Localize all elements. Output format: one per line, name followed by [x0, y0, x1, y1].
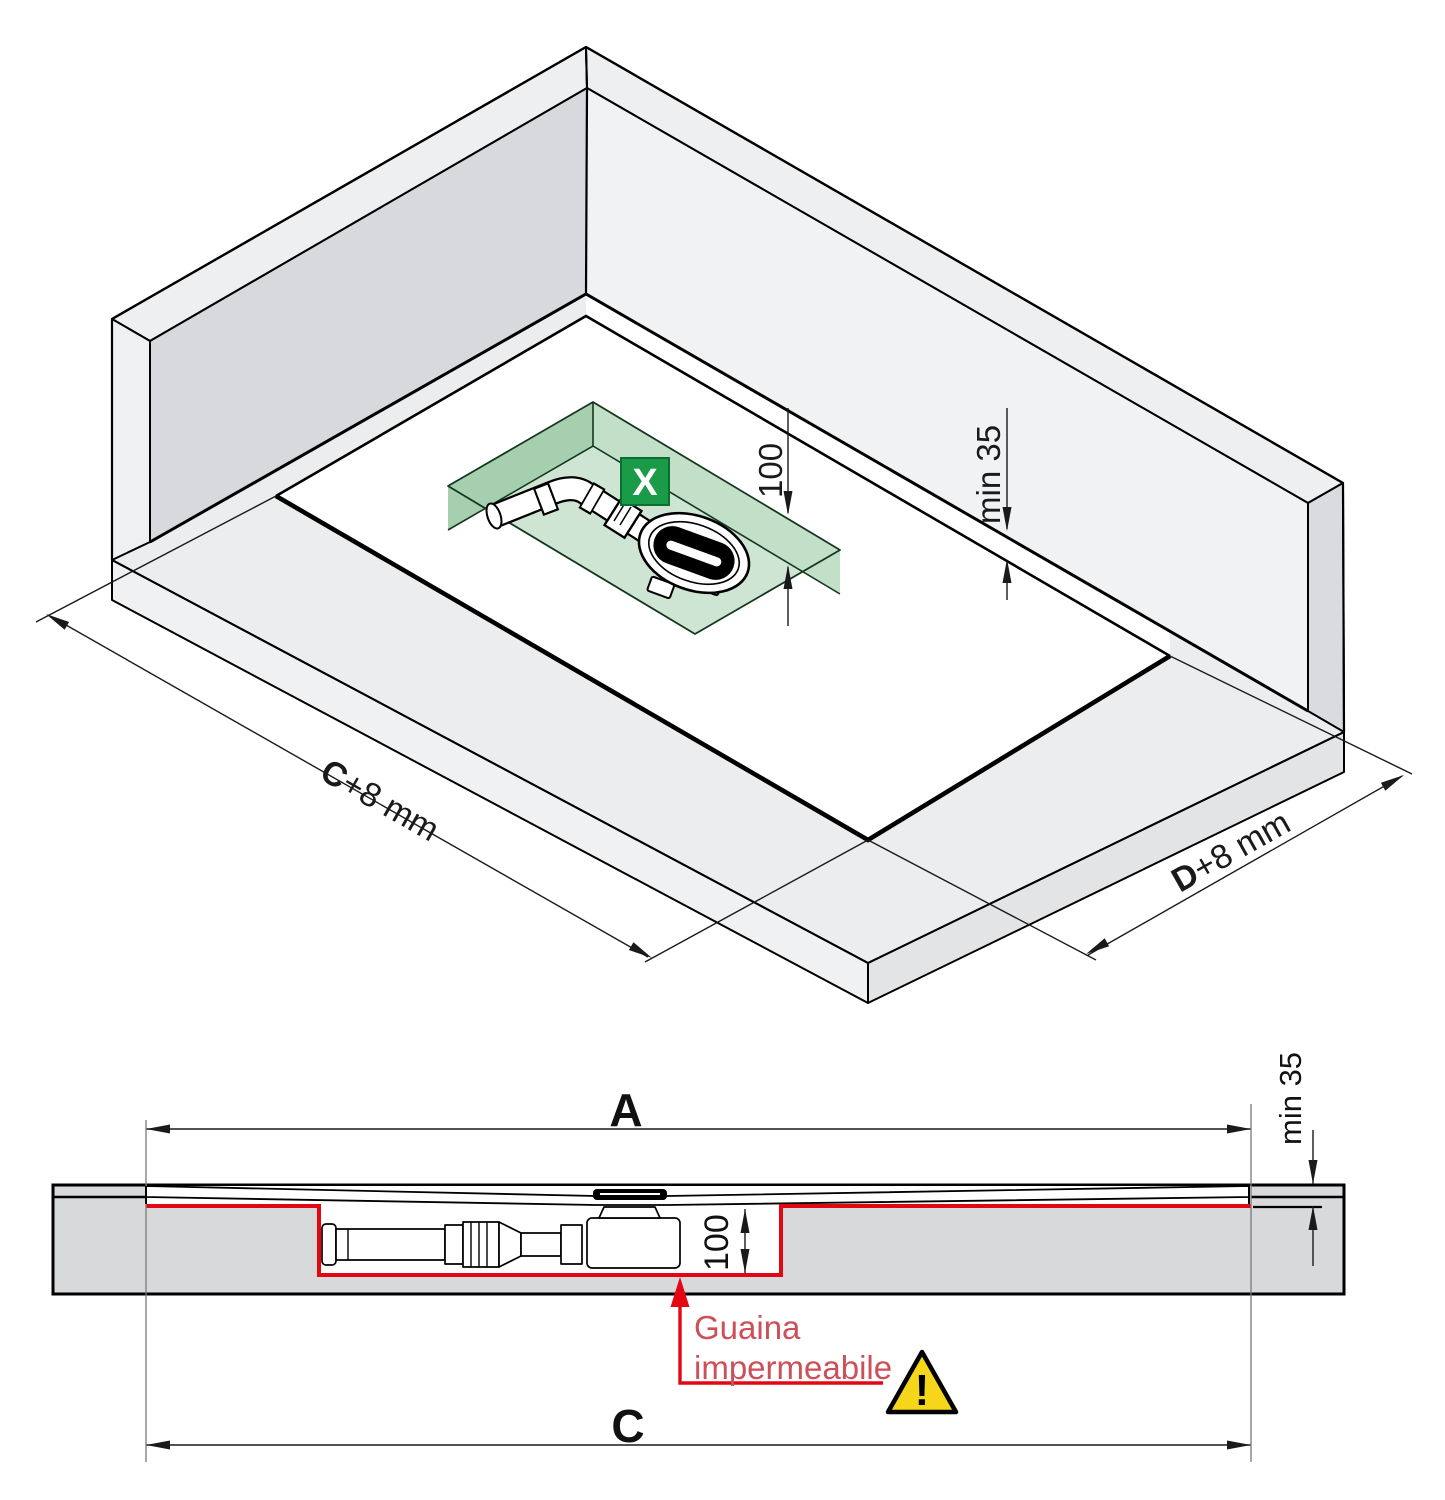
svg-text:min 35: min 35: [1273, 1052, 1308, 1145]
svg-text:C: C: [611, 1400, 644, 1452]
svg-text:A: A: [609, 1084, 642, 1136]
svg-text:min 35: min 35: [970, 425, 1007, 524]
svg-text:impermeabile: impermeabile: [694, 1349, 892, 1386]
svg-text:100: 100: [698, 1214, 736, 1271]
svg-text:!: !: [915, 1366, 930, 1415]
svg-text:X: X: [632, 462, 658, 504]
svg-text:Guaina: Guaina: [694, 1309, 801, 1346]
svg-text:100: 100: [752, 443, 789, 498]
